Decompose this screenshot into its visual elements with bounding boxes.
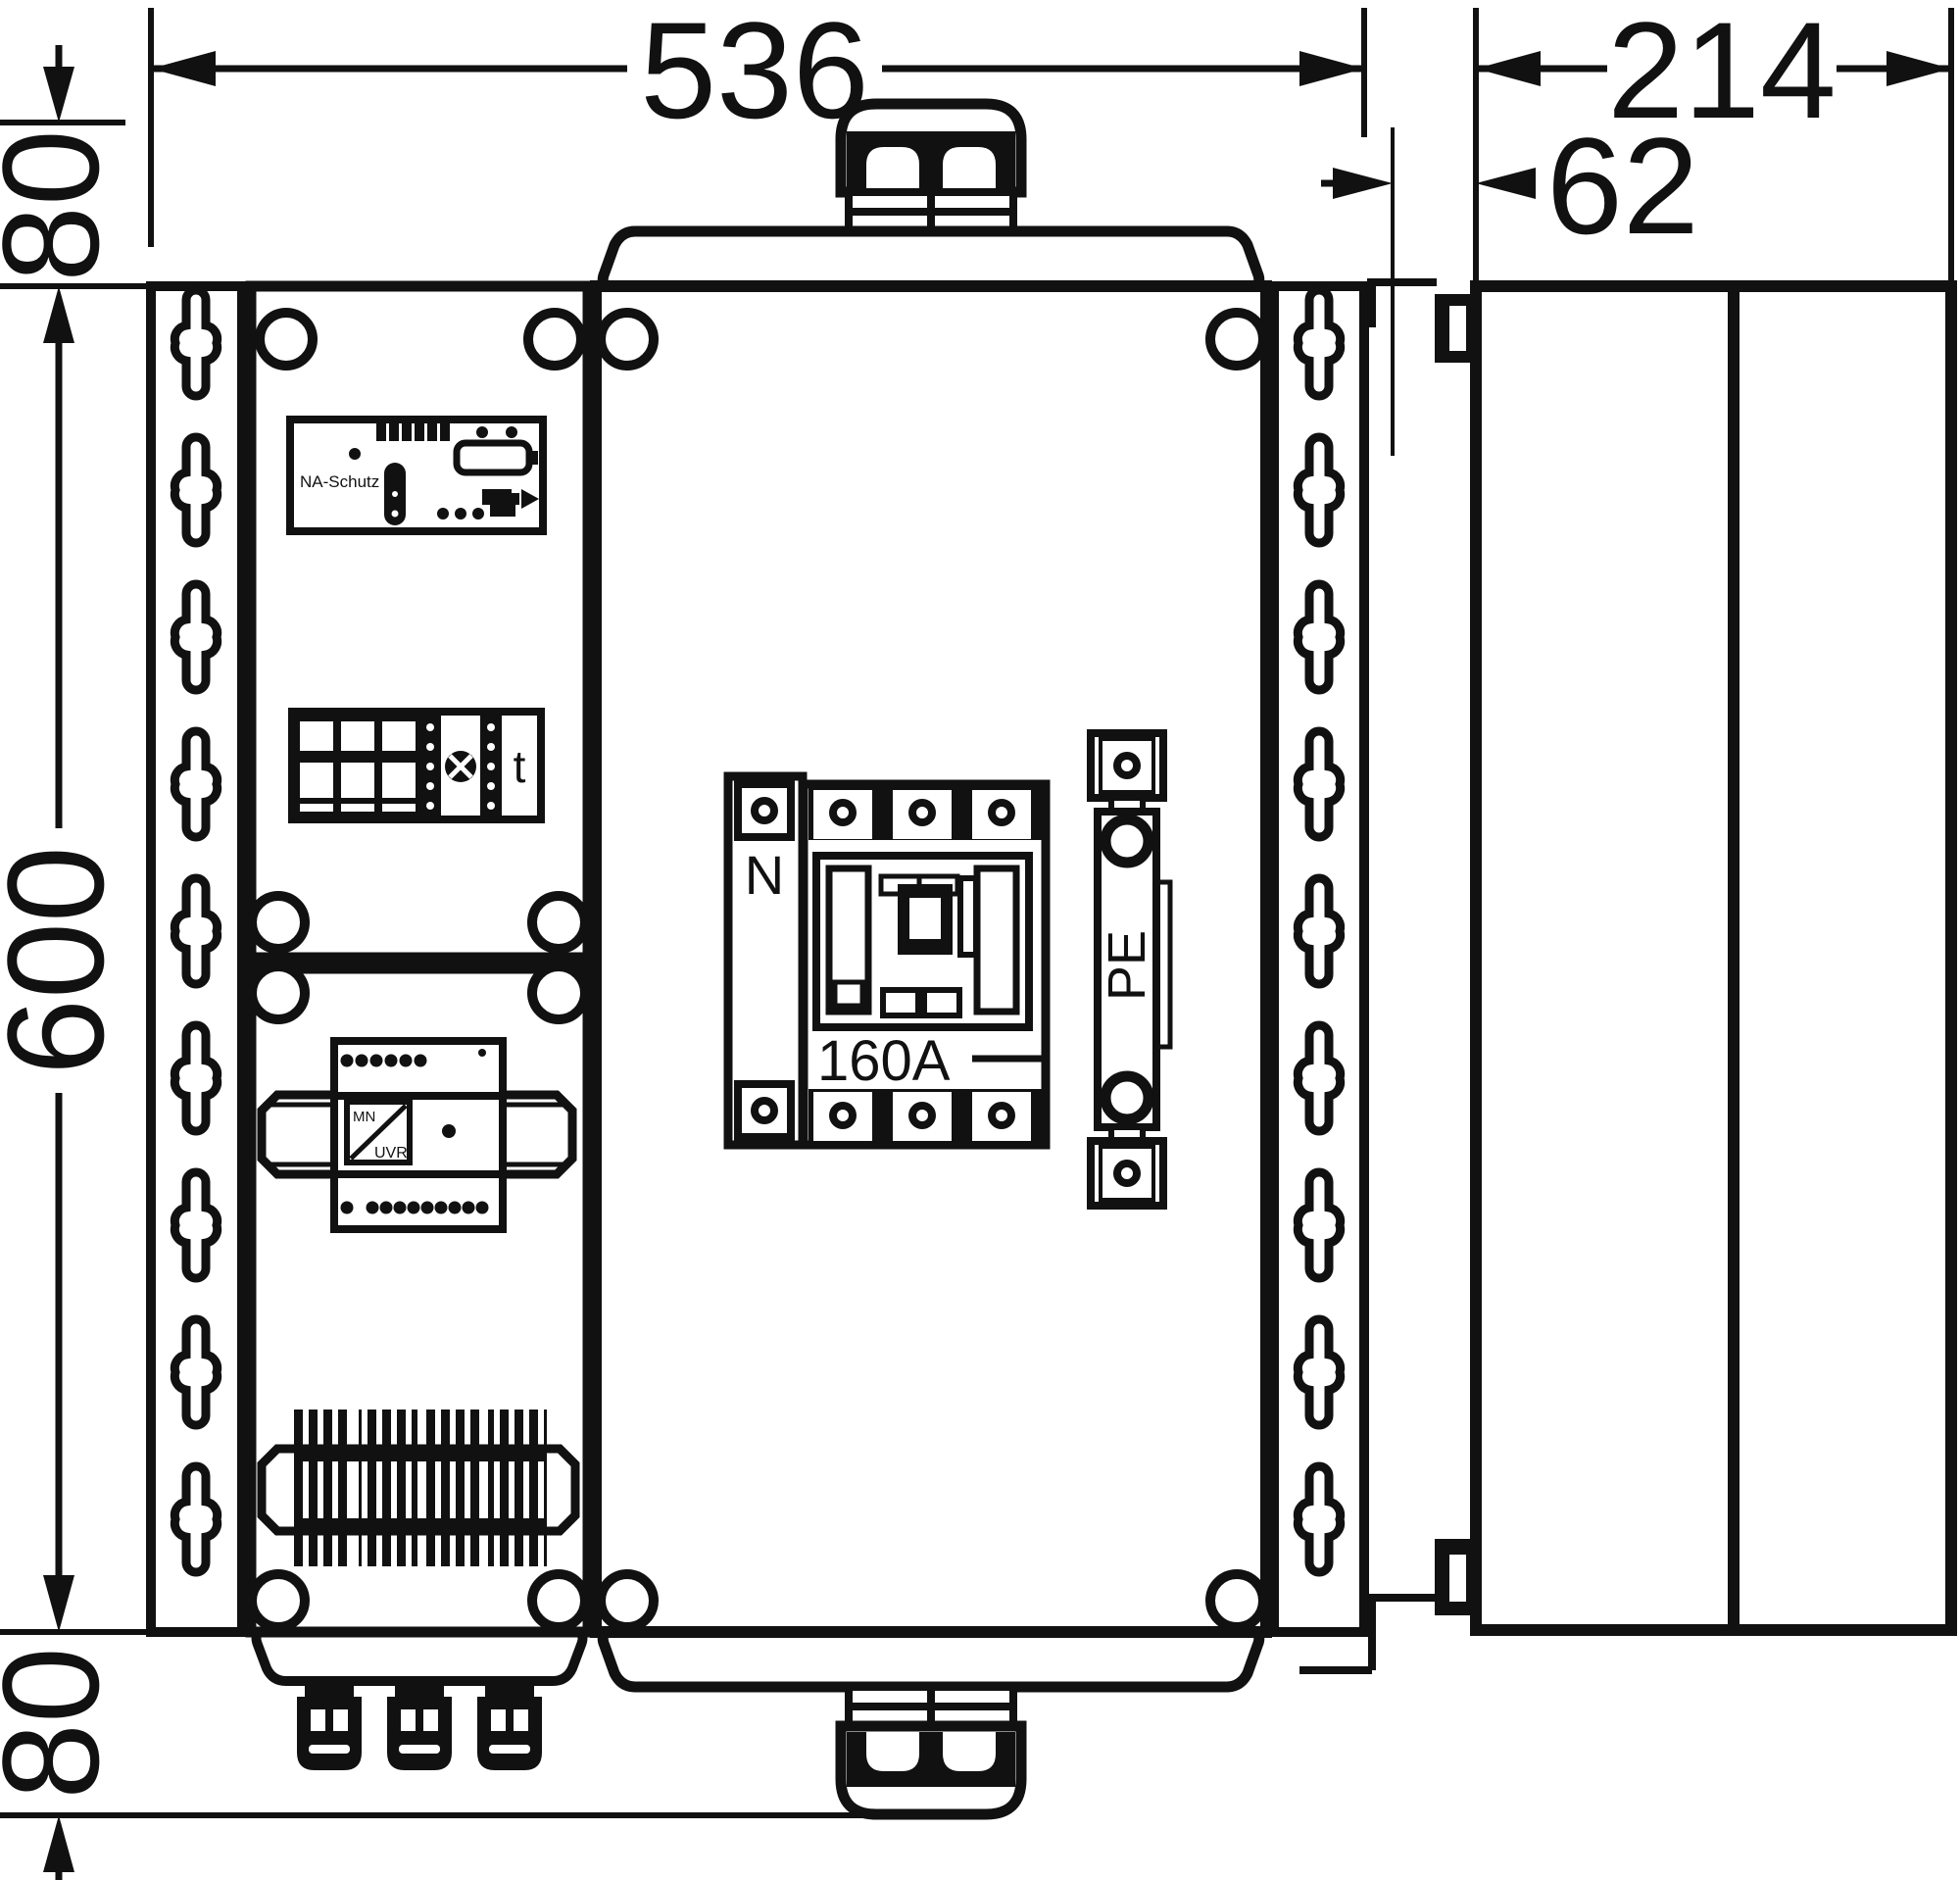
drawing-canvas: 536 80 600 80 214 62 bbox=[0, 0, 1960, 1880]
neutral-label: N bbox=[745, 844, 784, 906]
terminal-screw-icon bbox=[1117, 756, 1137, 775]
mounting-rail-right bbox=[1274, 286, 1364, 1632]
wall-mount-profile-top bbox=[1367, 282, 1437, 327]
bottom-flange-main bbox=[603, 1632, 1259, 1687]
dim-bottom-offset-value: 80 bbox=[0, 1647, 127, 1800]
relay-uvr-label: UVR bbox=[374, 1145, 408, 1162]
dimension-top-offset-80: 80 bbox=[0, 45, 151, 286]
breaker-mechanism bbox=[816, 856, 1029, 1027]
cable-gland-top-icon bbox=[841, 104, 1021, 231]
dim-wall-offset-value: 62 bbox=[1546, 109, 1699, 263]
relay-mn-label: MN bbox=[353, 1109, 375, 1125]
na-schutz-module: NA-Schutz bbox=[290, 420, 543, 531]
top-flange bbox=[603, 231, 1259, 286]
technical-drawing-enclosure: 536 80 600 80 214 62 bbox=[0, 0, 1960, 1880]
main-breaker: N 160A bbox=[728, 776, 1046, 1145]
cable-gland-bottom-icon bbox=[841, 1687, 1021, 1814]
time-relay-module: t bbox=[292, 712, 541, 819]
small-cable-glands-icon bbox=[297, 1681, 542, 1770]
front-view: NA-Schutz t bbox=[151, 104, 1364, 1814]
bottom-flange-left bbox=[257, 1632, 583, 1681]
terminal-screw-icon bbox=[755, 801, 774, 820]
pe-label: PE bbox=[1098, 930, 1156, 1001]
time-relay-label: t bbox=[514, 741, 526, 792]
dimension-width-536: 536 bbox=[151, 0, 1364, 247]
dim-height-value: 600 bbox=[0, 846, 132, 1075]
left-section-upper bbox=[251, 286, 588, 958]
dimension-height-600: 600 bbox=[0, 286, 132, 1632]
na-schutz-label: NA-Schutz bbox=[300, 472, 379, 491]
dim-width-value: 536 bbox=[640, 0, 869, 147]
breaker-rating-label: 160A bbox=[817, 1029, 951, 1093]
display-icon bbox=[457, 443, 529, 472]
side-view-body bbox=[1476, 286, 1951, 1630]
dim-top-offset-value: 80 bbox=[0, 129, 127, 282]
toggle-icon bbox=[909, 898, 941, 939]
side-view bbox=[1299, 282, 1951, 1670]
led-icon bbox=[349, 448, 361, 460]
mounting-rail-left bbox=[151, 286, 242, 1632]
screw-icon bbox=[260, 313, 313, 366]
